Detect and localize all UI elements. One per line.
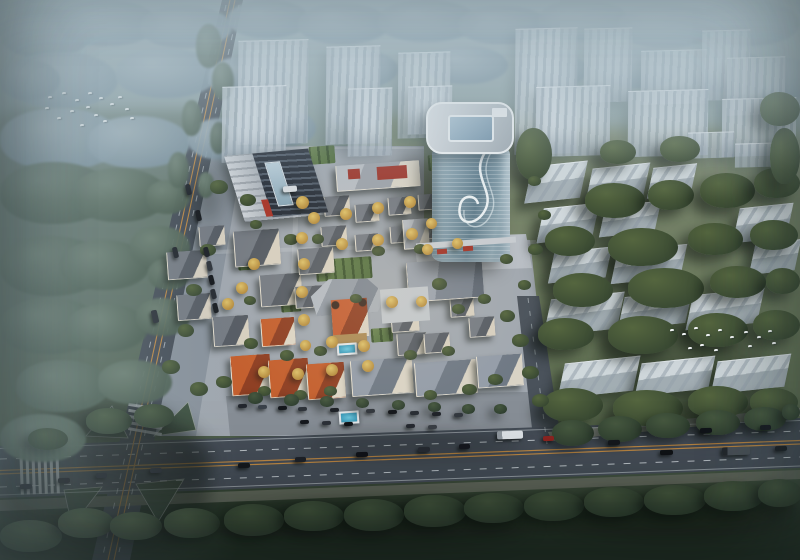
vignette — [0, 0, 800, 560]
aerial-rendering — [0, 0, 800, 560]
